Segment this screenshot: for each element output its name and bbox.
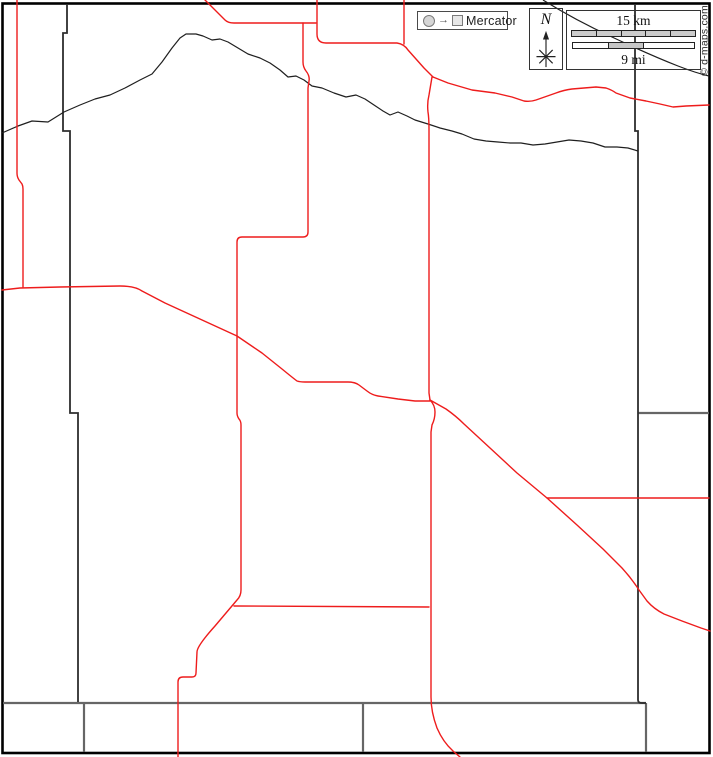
- globe-circle-icon: [423, 15, 435, 27]
- section-lines-group: [3, 413, 709, 752]
- roads-group: [2, 0, 710, 757]
- road-northeast-horizontal: [433, 77, 709, 107]
- flat-map-square-icon: [452, 15, 463, 26]
- boundaries-group: [63, 4, 646, 703]
- road-south-horizontal: [234, 606, 429, 607]
- projection-legend: → Mercator: [417, 11, 508, 30]
- scale-km-label: 15 km: [567, 14, 700, 28]
- road-southeast-diagonal: [430, 400, 710, 631]
- compass-needle-icon: [530, 29, 562, 69]
- road-north-connector: [317, 0, 433, 77]
- map-canvas: → Mercator N 15 km 9 mi © d-maps.com: [0, 0, 713, 757]
- road-west-vertical: [17, 0, 23, 287]
- map-outer-border: [3, 4, 710, 754]
- scale-mi-label: 9 mi: [567, 53, 700, 67]
- road-central-vertical: [178, 23, 309, 757]
- road-west-diagonal: [2, 286, 430, 401]
- map-drawing: [0, 0, 713, 757]
- compass-rose: N: [529, 8, 563, 70]
- map-border-group: [3, 4, 710, 754]
- km-scale-bar: [571, 30, 696, 37]
- arrow-right-icon: →: [438, 15, 449, 26]
- projection-name: Mercator: [466, 14, 517, 28]
- mi-scale-bar: [572, 42, 695, 49]
- copyright-notice: © d-maps.com: [699, 1, 712, 81]
- north-label: N: [541, 12, 552, 28]
- scale-bar: 15 km 9 mi: [566, 10, 701, 70]
